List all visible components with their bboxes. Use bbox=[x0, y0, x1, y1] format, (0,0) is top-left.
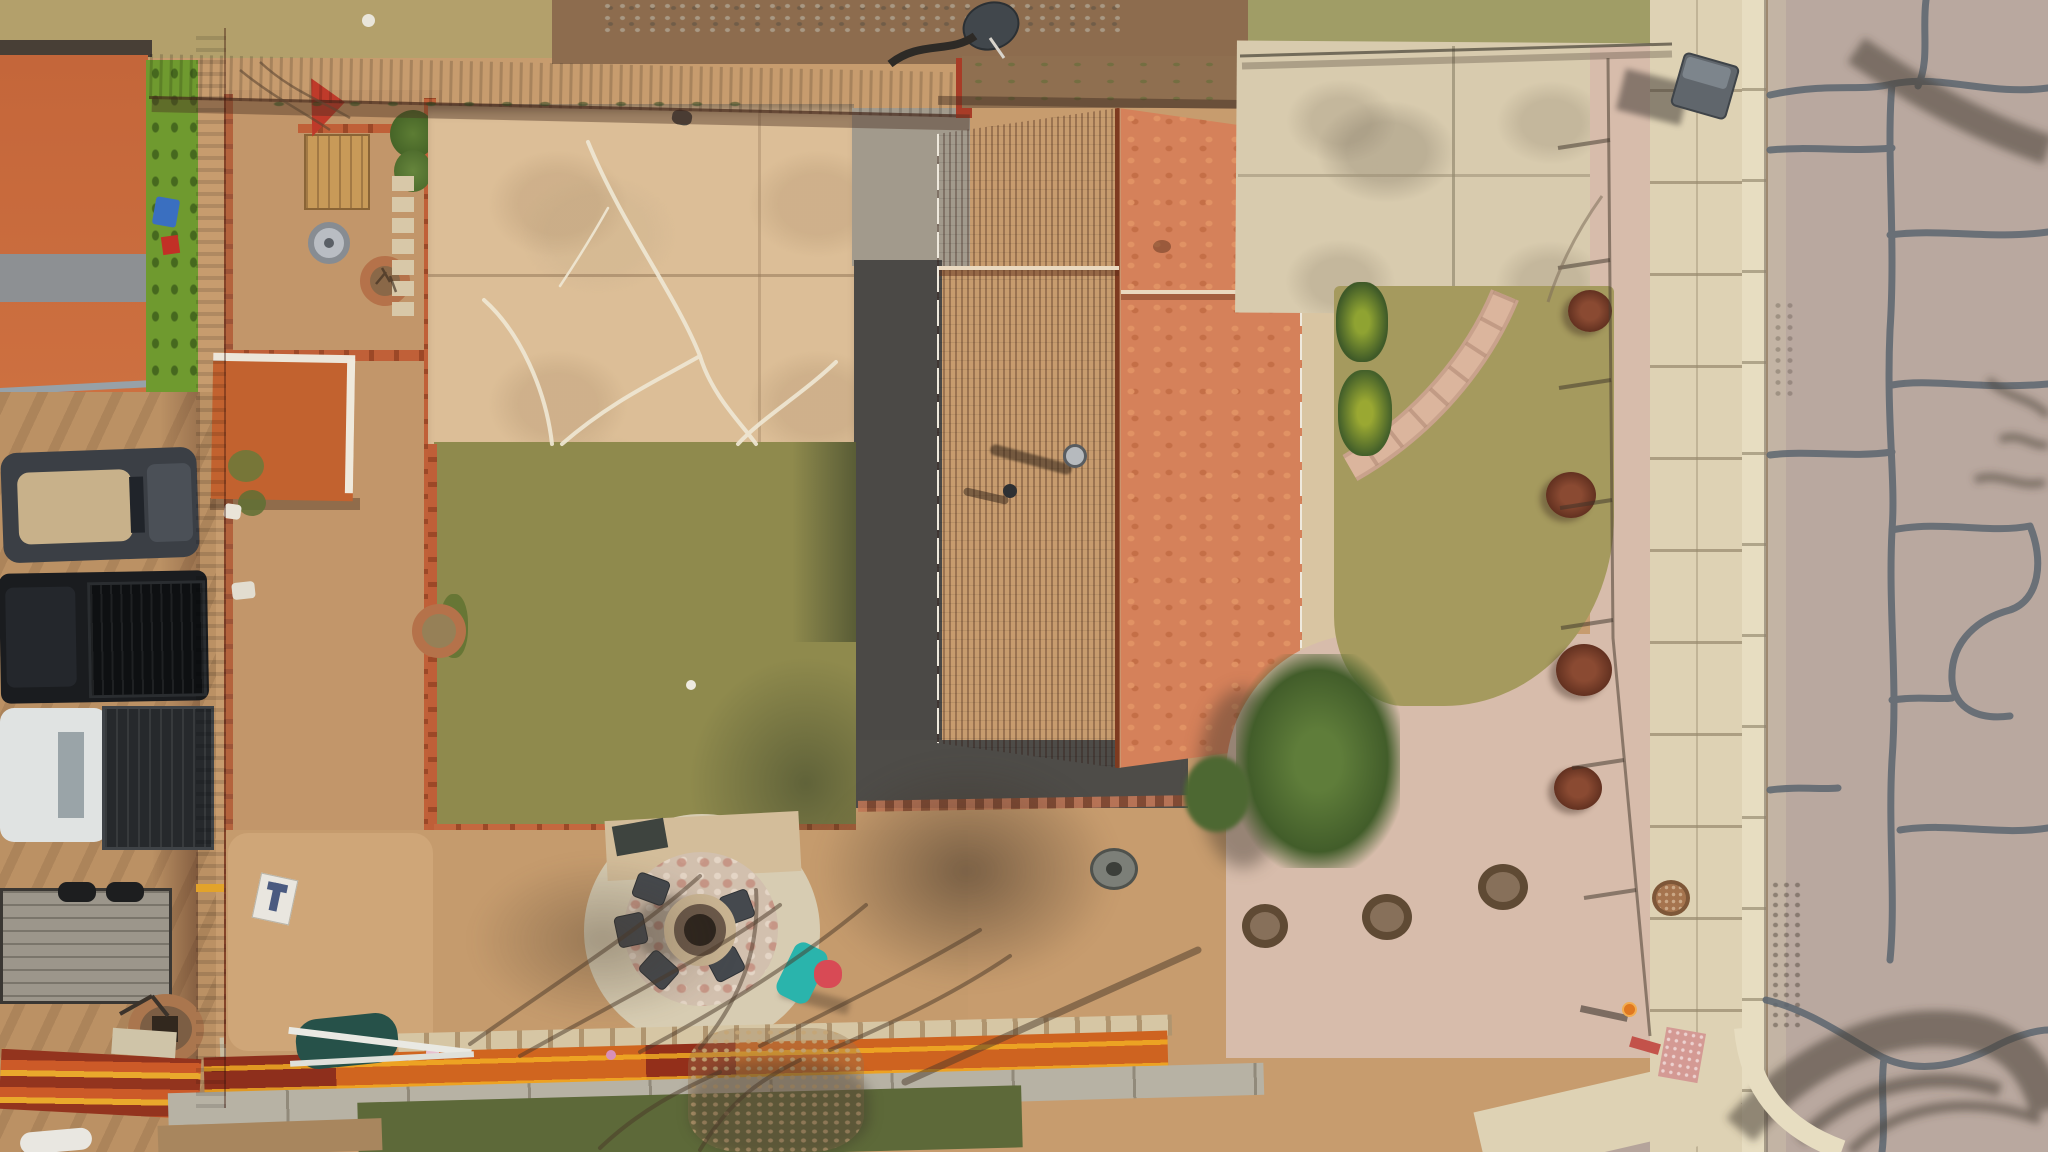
trailer-tire bbox=[58, 882, 96, 902]
patio-seam bbox=[428, 274, 854, 277]
neighbor-roof-ridge-section bbox=[0, 254, 148, 302]
roof-vent-cap bbox=[1063, 444, 1087, 468]
tree-canopy-shadow bbox=[812, 752, 1122, 990]
neighbor-house-roof bbox=[0, 55, 148, 393]
red-shrub bbox=[1554, 766, 1602, 810]
red-shrub bbox=[1546, 472, 1596, 518]
street-staining bbox=[1772, 300, 1798, 400]
roof-stain bbox=[1153, 240, 1171, 253]
red-shrub bbox=[1556, 644, 1612, 696]
dark-gravel-strip-west bbox=[854, 260, 942, 754]
aerial-photo-scene bbox=[0, 0, 2048, 1152]
red-yard-item bbox=[161, 235, 180, 255]
red-shrub bbox=[1568, 290, 1612, 332]
tree-ring bbox=[1362, 894, 1412, 940]
manhole-cover bbox=[1652, 880, 1690, 916]
front-tree-foliage bbox=[1184, 756, 1250, 832]
tree-ring bbox=[1478, 864, 1528, 910]
black-pickup-bed bbox=[87, 580, 207, 698]
trailer-tire bbox=[106, 882, 144, 902]
gray-bowl-center bbox=[1106, 862, 1122, 876]
curb bbox=[1742, 0, 1766, 1152]
eave-shadow bbox=[937, 270, 1119, 276]
white-pickup-cab bbox=[0, 708, 108, 842]
house-shadow-on-lawn bbox=[792, 442, 856, 642]
black-pickup-cab bbox=[5, 586, 77, 687]
convertible-windshield bbox=[129, 476, 145, 532]
weed-clump bbox=[228, 450, 264, 482]
white-ball bbox=[362, 14, 375, 27]
red-privacy-fence-west bbox=[196, 28, 226, 1108]
tree-ring bbox=[1242, 904, 1288, 948]
wood-planter-box bbox=[304, 134, 370, 210]
roof-left-slope bbox=[937, 108, 1119, 770]
white-ball-on-lawn bbox=[686, 680, 696, 690]
pink-ball bbox=[606, 1050, 616, 1060]
white-pickup-truck bbox=[0, 702, 208, 848]
curb-ramp-pad bbox=[1658, 1027, 1706, 1083]
weed-clump bbox=[238, 490, 266, 516]
flatbed-trailer bbox=[0, 888, 172, 1004]
wheel-hub bbox=[324, 238, 334, 248]
black-pickup-truck bbox=[0, 570, 209, 704]
yellow-fence-rail bbox=[196, 884, 224, 892]
brush-shadow bbox=[690, 1060, 870, 1152]
sidewalk bbox=[1650, 0, 1744, 1152]
fire-hydrant bbox=[1622, 1002, 1637, 1017]
blue-yard-item bbox=[152, 196, 180, 228]
front-shade-tree bbox=[1236, 654, 1400, 868]
shed-ridge-cap bbox=[213, 353, 355, 363]
white-pickup-windshield bbox=[58, 732, 84, 818]
roof-ridge bbox=[1115, 108, 1121, 770]
roof-vent-pipe bbox=[1003, 484, 1017, 498]
street-staining bbox=[1770, 880, 1804, 1030]
stepping-stone-path bbox=[392, 176, 414, 316]
weeds-along-fence bbox=[260, 96, 760, 116]
lawn-corner-planter bbox=[412, 604, 466, 658]
stone-block bbox=[111, 1028, 177, 1058]
evergreen-shrub bbox=[1338, 370, 1392, 456]
tree-canopy-shadow bbox=[470, 856, 736, 1024]
convertible-trunk bbox=[147, 463, 194, 542]
convertible-soft-top bbox=[17, 469, 133, 545]
convertible-car bbox=[0, 447, 200, 564]
rock-rubble-row bbox=[600, 0, 1120, 38]
white-yard-item bbox=[231, 581, 256, 600]
evergreen-shrub bbox=[1336, 282, 1388, 362]
storage-shed-roof bbox=[211, 353, 356, 501]
street-asphalt bbox=[1786, 0, 2048, 1152]
patio-seam bbox=[758, 104, 761, 446]
